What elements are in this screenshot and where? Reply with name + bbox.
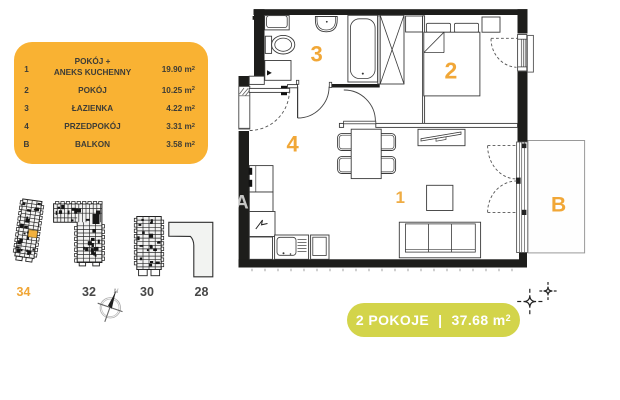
- svg-text:34: 34: [17, 285, 31, 299]
- svg-text:2: 2: [445, 58, 458, 84]
- svg-text:30: 30: [140, 285, 154, 299]
- svg-text:N: N: [114, 288, 119, 295]
- svg-text:B: B: [551, 194, 566, 217]
- svg-text:32: 32: [82, 285, 96, 299]
- svg-text:3: 3: [311, 42, 323, 67]
- svg-text:28: 28: [195, 285, 209, 299]
- svg-text:1: 1: [396, 188, 405, 207]
- svg-text:4: 4: [287, 132, 300, 157]
- svg-text:A: A: [235, 193, 249, 214]
